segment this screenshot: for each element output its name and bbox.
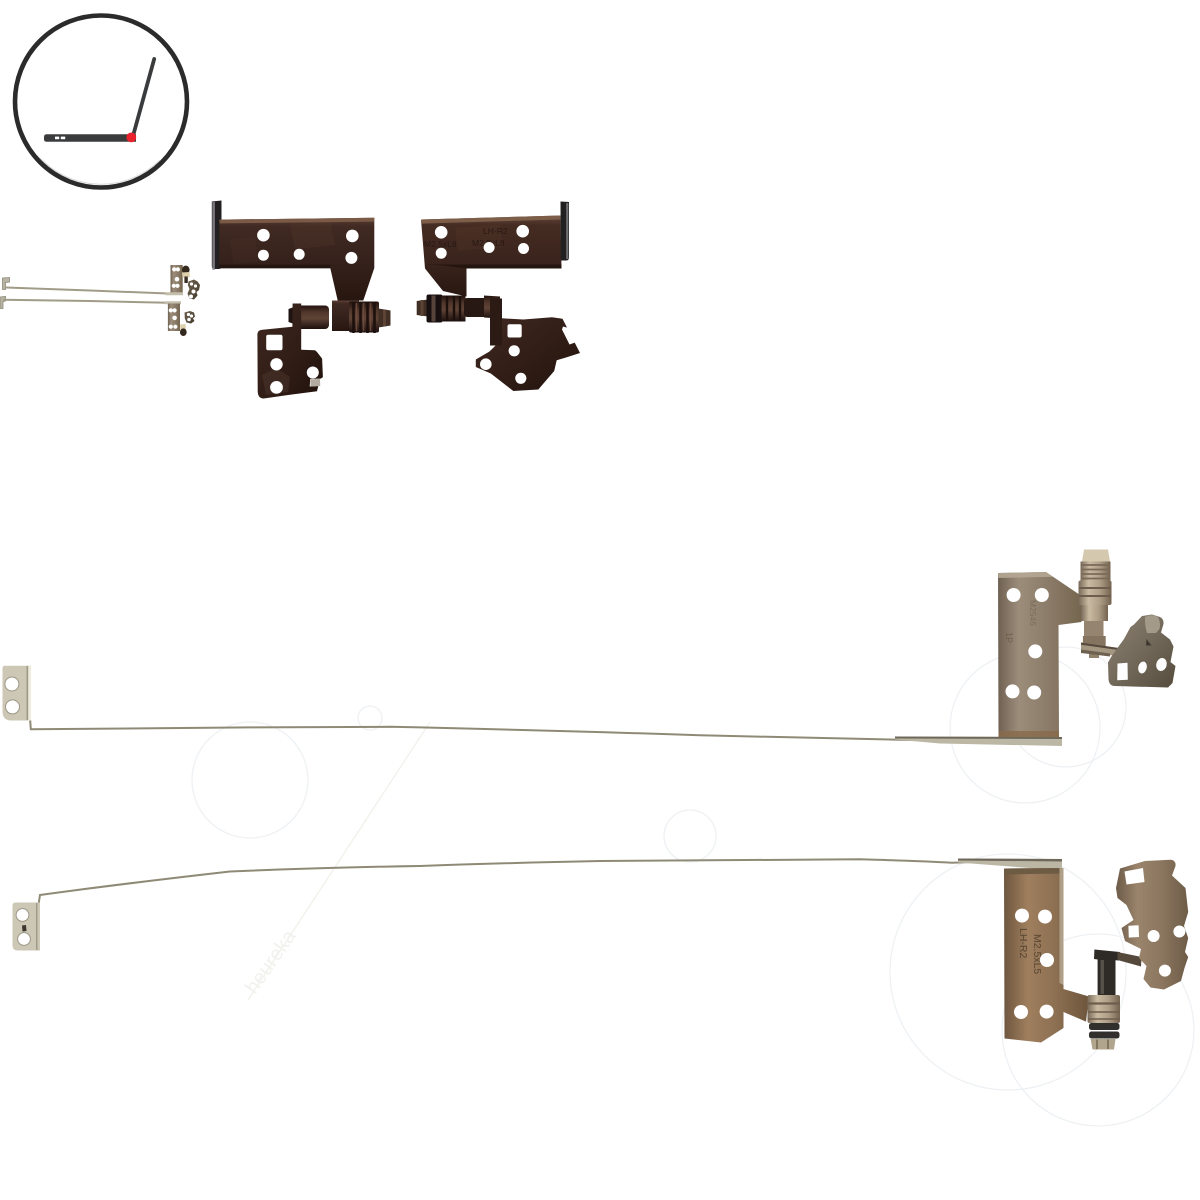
svg-text:M2545: M2545 [1028, 600, 1038, 626]
svg-text:LH-R2: LH-R2 [1017, 928, 1029, 959]
svg-text:LH-R2: LH-R2 [483, 226, 508, 236]
svg-text:1P: 1P [1004, 632, 1014, 643]
svg-text:M2.5xL5: M2.5xL5 [1031, 934, 1043, 974]
svg-text:M2.5xL8: M2.5xL8 [424, 239, 457, 249]
